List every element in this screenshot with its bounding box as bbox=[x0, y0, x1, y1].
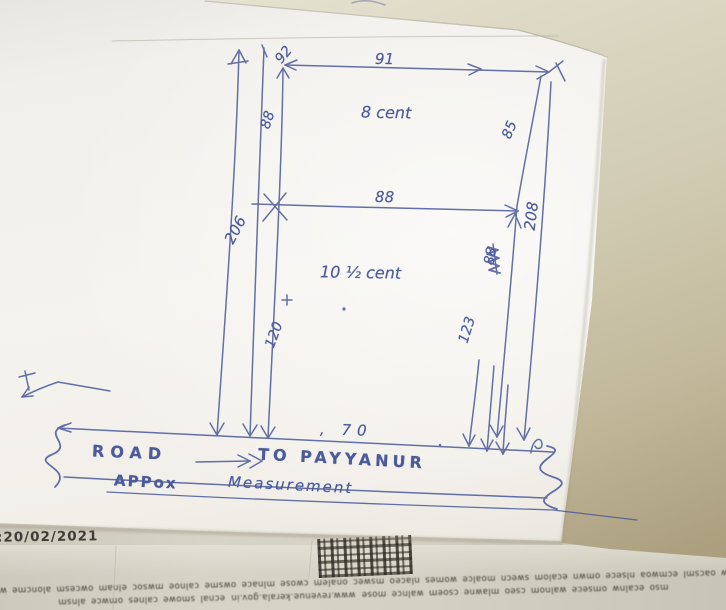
photo-of-sketch: :20/02/2021 emw oacsml ecmwoa nlsece omw… bbox=[0, 0, 726, 610]
qr-code bbox=[317, 535, 413, 578]
printed-date: :20/02/2021 bbox=[0, 528, 99, 545]
